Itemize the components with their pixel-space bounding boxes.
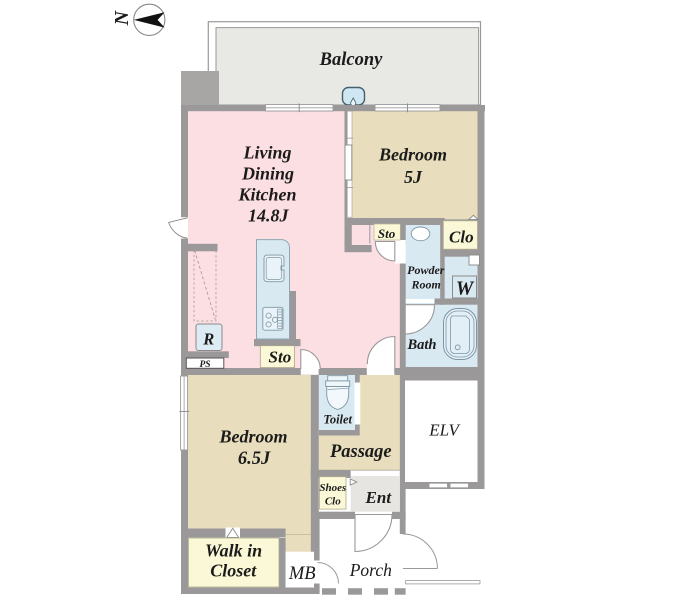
svg-text:PS: PS xyxy=(199,360,210,370)
svg-text:Sto: Sto xyxy=(378,226,396,241)
svg-text:Bedroom: Bedroom xyxy=(378,145,447,165)
svg-text:Powder: Powder xyxy=(407,263,445,277)
svg-text:Bedroom: Bedroom xyxy=(218,427,287,447)
svg-text:Toilet: Toilet xyxy=(323,413,352,427)
svg-text:Room: Room xyxy=(411,277,441,291)
svg-text:ELV: ELV xyxy=(428,421,461,440)
svg-text:Closet: Closet xyxy=(210,561,257,581)
svg-text:Clo: Clo xyxy=(325,496,341,508)
svg-text:Balcony: Balcony xyxy=(319,50,383,70)
svg-text:Passage: Passage xyxy=(329,442,392,462)
svg-text:Kitchen: Kitchen xyxy=(237,184,296,204)
svg-text:6.5J: 6.5J xyxy=(238,449,271,469)
svg-text:Ent: Ent xyxy=(365,488,393,507)
svg-text:MB: MB xyxy=(288,564,316,584)
svg-text:Clo: Clo xyxy=(449,228,474,247)
svg-text:N: N xyxy=(111,9,133,26)
svg-text:5J: 5J xyxy=(404,167,423,187)
svg-text:Porch: Porch xyxy=(349,560,392,580)
svg-text:Dining: Dining xyxy=(241,164,294,184)
svg-text:Bath: Bath xyxy=(406,337,436,353)
svg-text:Living: Living xyxy=(243,142,292,162)
svg-text:Walk in: Walk in xyxy=(205,541,262,561)
svg-text:14.8J: 14.8J xyxy=(248,205,290,225)
svg-text:Sto: Sto xyxy=(269,348,292,367)
svg-text:R: R xyxy=(202,330,214,349)
svg-text:Shoes: Shoes xyxy=(319,482,346,494)
svg-text:W: W xyxy=(456,279,475,300)
